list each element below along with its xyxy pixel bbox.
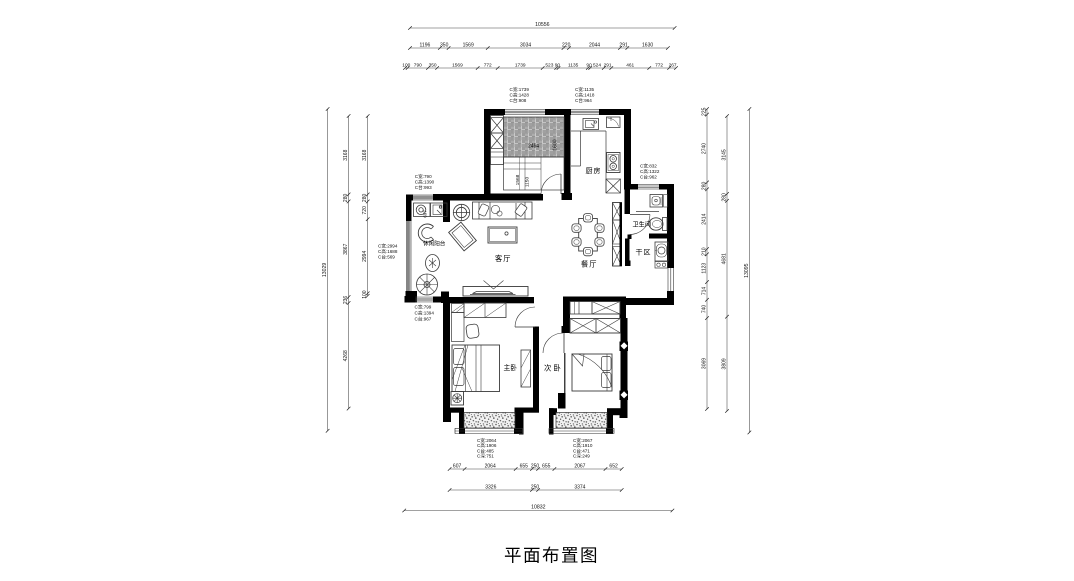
svg-text:280: 280 <box>722 193 728 202</box>
svg-text:291: 291 <box>619 42 628 48</box>
svg-text:220: 220 <box>562 42 571 48</box>
svg-text:2067: 2067 <box>574 463 585 469</box>
svg-text:3867: 3867 <box>343 243 349 254</box>
svg-text:13095: 13095 <box>744 263 750 278</box>
svg-text:461: 461 <box>626 62 634 68</box>
svg-text:C台:962: C台:962 <box>640 174 657 181</box>
svg-text:10832: 10832 <box>531 505 546 511</box>
svg-text:2064: 2064 <box>485 463 496 469</box>
svg-text:772: 772 <box>484 62 492 68</box>
svg-text:休闲阳台: 休闲阳台 <box>423 240 446 248</box>
svg-text:客厅: 客厅 <box>495 254 511 263</box>
svg-text:100: 100 <box>362 290 368 299</box>
svg-text:干区: 干区 <box>636 249 652 257</box>
svg-text:655: 655 <box>520 463 529 469</box>
svg-text:3326: 3326 <box>485 484 496 490</box>
svg-text:3374: 3374 <box>574 484 585 490</box>
svg-text:C宽:799: C宽:799 <box>415 304 432 311</box>
svg-text:1150: 1150 <box>525 177 531 188</box>
svg-text:次卧: 次卧 <box>544 364 563 373</box>
svg-text:C台:908: C台:908 <box>510 97 527 104</box>
svg-text:225: 225 <box>702 107 708 116</box>
svg-text:280: 280 <box>343 194 349 203</box>
svg-text:3145: 3145 <box>722 149 728 160</box>
svg-text:C台:964: C台:964 <box>575 97 592 104</box>
svg-text:210: 210 <box>702 247 708 256</box>
svg-text:C台:967: C台:967 <box>415 316 432 323</box>
svg-text:90: 90 <box>586 62 592 68</box>
svg-text:C台:993: C台:993 <box>415 184 432 191</box>
svg-text:350: 350 <box>440 42 449 48</box>
svg-text:C深:751: C深:751 <box>477 453 494 460</box>
svg-text:523: 523 <box>545 62 553 68</box>
svg-text:3034: 3034 <box>520 42 531 48</box>
svg-text:350: 350 <box>429 62 437 68</box>
svg-text:3168: 3168 <box>343 149 349 160</box>
svg-text:772: 772 <box>655 62 663 68</box>
svg-text:1600: 1600 <box>553 139 559 150</box>
svg-text:2414: 2414 <box>702 213 708 224</box>
svg-text:720: 720 <box>362 206 368 215</box>
svg-text:3168: 3168 <box>362 149 368 160</box>
svg-text:主卧: 主卧 <box>504 363 518 372</box>
svg-text:1135: 1135 <box>568 62 579 68</box>
svg-text:C深:249: C深:249 <box>573 453 590 460</box>
svg-text:267: 267 <box>669 62 677 68</box>
svg-text:655: 655 <box>542 463 551 469</box>
svg-text:740: 740 <box>702 305 708 314</box>
svg-text:C高:1394: C高:1394 <box>415 310 435 317</box>
svg-text:2994: 2994 <box>362 251 368 262</box>
svg-text:3069: 3069 <box>702 358 708 369</box>
svg-text:卫生间: 卫生间 <box>633 221 652 229</box>
svg-text:厨房: 厨房 <box>586 166 602 175</box>
svg-text:平面布置图: 平面布置图 <box>504 546 599 566</box>
svg-text:10556: 10556 <box>535 22 550 28</box>
svg-text:1123: 1123 <box>702 263 708 274</box>
svg-text:1630: 1630 <box>642 42 653 48</box>
svg-text:291: 291 <box>604 62 612 68</box>
svg-text:2740: 2740 <box>702 143 708 154</box>
svg-text:250: 250 <box>531 484 540 490</box>
svg-text:1569: 1569 <box>452 62 463 68</box>
svg-text:100: 100 <box>402 62 410 68</box>
svg-text:1569: 1569 <box>463 42 474 48</box>
svg-text:4268: 4268 <box>343 350 349 361</box>
svg-text:280: 280 <box>702 182 708 191</box>
svg-text:250: 250 <box>531 463 540 469</box>
svg-text:90: 90 <box>555 62 561 68</box>
svg-text:2044: 2044 <box>589 42 600 48</box>
svg-text:652: 652 <box>609 463 618 469</box>
svg-text:1568: 1568 <box>515 174 521 185</box>
svg-text:714: 714 <box>702 287 708 296</box>
svg-text:1196: 1196 <box>420 42 431 48</box>
svg-text:1739: 1739 <box>515 62 526 68</box>
svg-text:524: 524 <box>593 62 601 68</box>
svg-text:3809: 3809 <box>722 358 728 369</box>
svg-text:280: 280 <box>362 194 368 203</box>
svg-text:607: 607 <box>453 463 462 469</box>
svg-text:C台:569: C台:569 <box>378 254 395 261</box>
svg-text:餐厅: 餐厅 <box>581 260 597 269</box>
svg-text:4681: 4681 <box>722 253 728 264</box>
svg-text:790: 790 <box>414 62 422 68</box>
svg-text:13029: 13029 <box>322 263 328 278</box>
svg-text:697: 697 <box>423 210 428 218</box>
svg-text:2464: 2464 <box>528 144 539 150</box>
svg-text:236: 236 <box>343 296 349 305</box>
